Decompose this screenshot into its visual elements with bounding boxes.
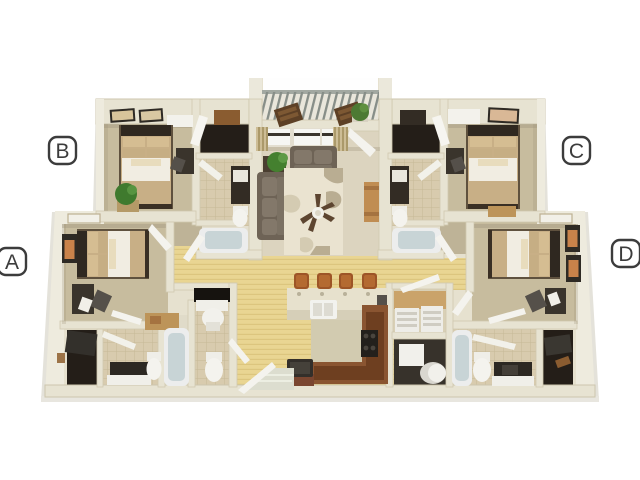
svg-text:B: B bbox=[55, 140, 69, 163]
svg-text:D: D bbox=[618, 243, 633, 266]
svg-text:C: C bbox=[569, 140, 584, 163]
svg-text:A: A bbox=[5, 251, 19, 274]
